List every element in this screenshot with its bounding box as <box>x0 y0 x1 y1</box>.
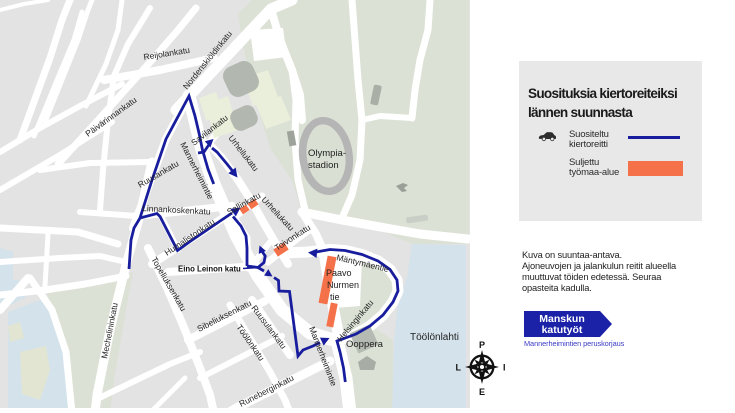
svg-text:I: I <box>503 363 506 373</box>
svg-text:tie: tie <box>330 292 340 302</box>
svg-text:Töölönlahti: Töölönlahti <box>410 332 459 343</box>
svg-text:Nurmen: Nurmen <box>327 280 359 290</box>
svg-text:L: L <box>456 363 462 373</box>
svg-text:katutyöt: katutyöt <box>542 324 583 336</box>
svg-text:Olympia-: Olympia- <box>308 148 346 159</box>
svg-text:stadion: stadion <box>308 160 339 171</box>
svg-text:E: E <box>479 387 485 397</box>
svg-text:Paavo: Paavo <box>326 268 352 278</box>
svg-text:Ooppera: Ooppera <box>346 339 384 350</box>
svg-text:P: P <box>479 340 485 350</box>
svg-text:Eino Leinon katu: Eino Leinon katu <box>178 265 241 274</box>
